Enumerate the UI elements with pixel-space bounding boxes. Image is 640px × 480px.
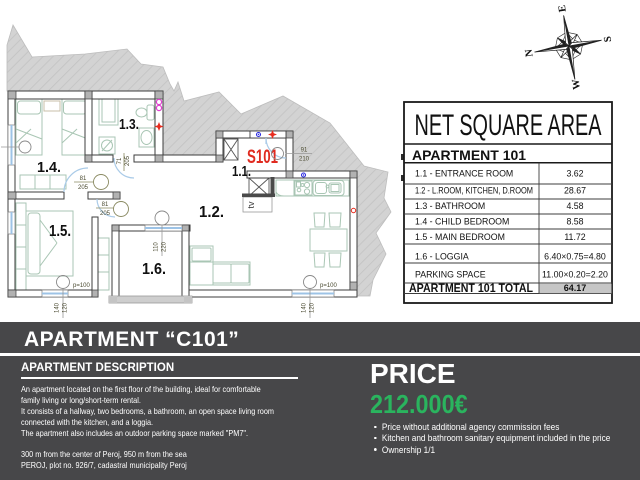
svg-text:71: 71 [117, 157, 123, 164]
svg-text:140: 140 [302, 302, 308, 313]
svg-text:NET SQUARE AREA: NET SQUARE AREA [415, 109, 602, 142]
svg-text:1.2 - L.ROOM, KITCHEN, D.ROOM: 1.2 - L.ROOM, KITCHEN, D.ROOM [415, 186, 533, 196]
svg-text:PARKING SPACE: PARKING SPACE [415, 270, 486, 280]
svg-text:6.40×0.75=4.80: 6.40×0.75=4.80 [544, 252, 606, 262]
svg-text:210: 210 [299, 157, 310, 163]
svg-text:8.58: 8.58 [566, 217, 583, 227]
svg-text:1.4.: 1.4. [37, 159, 61, 176]
svg-text:91: 91 [301, 148, 308, 154]
svg-text:205: 205 [78, 185, 89, 191]
svg-text:11.72: 11.72 [564, 232, 585, 242]
svg-text:4.58: 4.58 [566, 201, 583, 211]
svg-text:28.67: 28.67 [564, 186, 586, 196]
svg-text:205: 205 [100, 211, 111, 217]
svg-text:N: N [524, 48, 536, 57]
svg-text:p=100: p=100 [320, 283, 338, 289]
svg-text:S: S [603, 35, 615, 42]
svg-text:tv: tv [246, 201, 256, 209]
svg-text:81: 81 [80, 176, 87, 182]
svg-text:1.5.: 1.5. [49, 223, 71, 240]
svg-text:W: W [571, 78, 583, 90]
svg-text:120: 120 [63, 302, 69, 313]
svg-text:64.17: 64.17 [564, 283, 587, 293]
svg-text:205: 205 [125, 155, 131, 166]
svg-text:1.6.: 1.6. [142, 261, 166, 278]
svg-text:E: E [557, 4, 569, 12]
svg-text:1.5 - MAIN BEDROOM: 1.5 - MAIN BEDROOM [415, 232, 505, 242]
svg-text:120: 120 [310, 302, 316, 313]
svg-text:1.6 - LOGGIA: 1.6 - LOGGIA [415, 252, 469, 262]
svg-text:110: 110 [154, 242, 160, 252]
svg-text:APARTMENT 101: APARTMENT 101 [412, 147, 526, 163]
svg-text:140: 140 [55, 302, 61, 313]
svg-text:p=100: p=100 [73, 283, 91, 289]
svg-text:1.4 - CHILD BEDROOM: 1.4 - CHILD BEDROOM [415, 217, 509, 227]
svg-text:APARTMENT 101 TOTAL: APARTMENT 101 TOTAL [409, 281, 533, 295]
svg-text:81: 81 [102, 202, 109, 208]
svg-text:1.3.: 1.3. [119, 117, 139, 133]
svg-text:11.00×0.20=2.20: 11.00×0.20=2.20 [542, 270, 608, 280]
svg-text:220: 220 [162, 241, 168, 252]
svg-text:3.62: 3.62 [566, 169, 583, 179]
svg-text:1.2.: 1.2. [199, 204, 224, 221]
svg-text:1.1 - ENTRANCE ROOM: 1.1 - ENTRANCE ROOM [415, 169, 513, 179]
svg-text:1.3 - BATHROOM: 1.3 - BATHROOM [415, 201, 485, 211]
